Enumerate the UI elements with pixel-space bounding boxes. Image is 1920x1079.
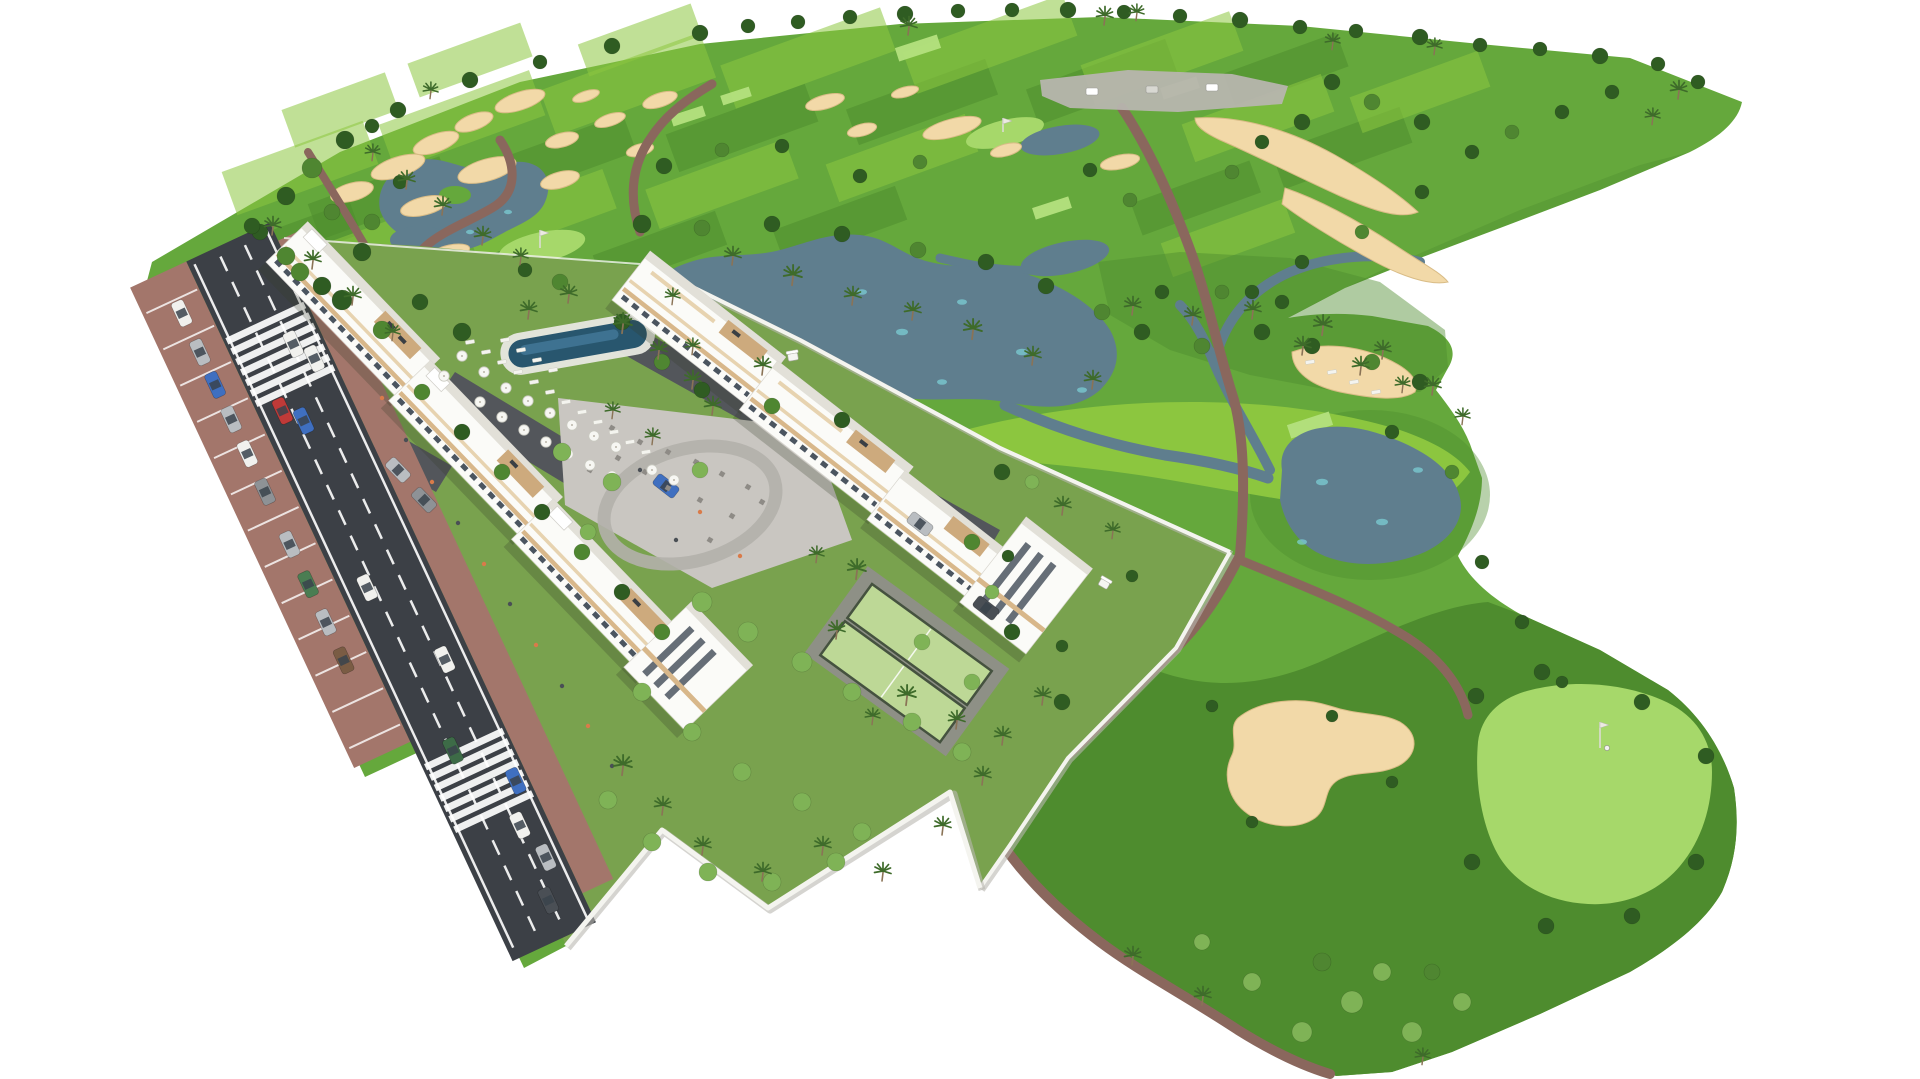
tree (1402, 1022, 1422, 1042)
tree (733, 763, 751, 781)
tree (643, 833, 661, 851)
tree (534, 504, 550, 520)
tree (1155, 285, 1169, 299)
tree (414, 384, 430, 400)
tree (1243, 973, 1261, 991)
palm-fronds (561, 285, 578, 296)
palm-fronds (1105, 522, 1120, 532)
tree (1385, 425, 1399, 439)
tree (1349, 24, 1363, 38)
tree (1056, 640, 1068, 652)
tree (1505, 125, 1519, 139)
pedestrian (380, 396, 384, 400)
tree (1173, 9, 1187, 23)
tree (353, 243, 371, 261)
umbrella-pole (589, 464, 591, 466)
tree (1194, 338, 1210, 354)
tree (633, 215, 651, 233)
tree (390, 102, 406, 118)
palm-fronds (755, 863, 772, 874)
tree (1538, 918, 1554, 934)
palm-fronds (1425, 377, 1442, 388)
tree (1005, 3, 1019, 17)
tree (1002, 550, 1014, 562)
tree (580, 524, 596, 540)
tree (1232, 12, 1248, 28)
palm-fronds (345, 287, 362, 298)
pedestrian (456, 521, 460, 525)
pool-umbrella (457, 351, 467, 361)
palm-fronds (1295, 337, 1312, 348)
tree (694, 220, 710, 236)
tree (277, 247, 295, 265)
parked-cart (1206, 84, 1218, 91)
tree (1275, 295, 1289, 309)
aerial-render-svg (0, 0, 1920, 1079)
tree (953, 743, 971, 761)
tree (1651, 57, 1665, 71)
golfer (1604, 745, 1609, 750)
tree (792, 652, 812, 672)
tree (1004, 624, 1020, 640)
tree (1060, 2, 1076, 18)
umbrella-pole (505, 387, 507, 389)
pedestrian (586, 724, 590, 728)
tree (336, 131, 354, 149)
tree (910, 242, 926, 258)
palm-fronds (1375, 341, 1392, 352)
pool-umbrella (589, 431, 599, 441)
tree (843, 683, 861, 701)
tree (1225, 165, 1239, 179)
tree (1293, 20, 1307, 34)
palm-fronds (975, 767, 992, 778)
palm-fronds (1035, 687, 1052, 698)
pool-umbrella (497, 412, 507, 422)
tree (1556, 676, 1568, 688)
palm-fronds (898, 685, 916, 697)
tree (775, 139, 789, 153)
tree (793, 793, 811, 811)
tree (244, 218, 260, 234)
tree (1364, 94, 1380, 110)
palm-fronds (815, 837, 832, 848)
umbrella-pole (479, 401, 481, 403)
pedestrian (638, 468, 642, 472)
pedestrian (430, 480, 434, 484)
tree (1117, 5, 1131, 19)
water-highlight (1077, 387, 1087, 393)
tree (1412, 29, 1428, 45)
palm-fronds (1055, 497, 1072, 508)
water-highlight (957, 299, 967, 305)
tree (683, 723, 701, 741)
pool-umbrella (501, 383, 511, 393)
tree (1326, 710, 1338, 722)
palm-fronds (755, 357, 772, 368)
tree (1206, 700, 1218, 712)
tree (951, 4, 965, 18)
tree (1123, 193, 1137, 207)
water-highlight (1316, 479, 1328, 486)
palm-fronds (875, 863, 892, 874)
tree (1194, 934, 1210, 950)
palm-fronds (685, 371, 702, 382)
palm-fronds (1645, 108, 1660, 118)
tree (574, 544, 590, 560)
pool-umbrella (519, 425, 529, 435)
palm-fronds (901, 17, 918, 28)
tree (1445, 465, 1459, 479)
tree (1324, 74, 1340, 90)
tree (1453, 993, 1471, 1011)
water-highlight (896, 329, 908, 336)
palm-fronds (784, 265, 802, 277)
tree (1465, 145, 1479, 159)
palm-fronds (645, 428, 660, 438)
pool-umbrella (523, 396, 533, 406)
tree (1134, 324, 1150, 340)
tree (843, 10, 857, 24)
umbrella-pole (501, 416, 503, 418)
umbrella-pole (545, 441, 547, 443)
palm-fronds (809, 546, 824, 556)
tree (763, 873, 781, 891)
tree (834, 412, 850, 428)
tree (453, 323, 471, 341)
pedestrian (482, 562, 486, 566)
palm-fronds (1314, 315, 1332, 327)
tree (633, 683, 651, 701)
tree (1254, 324, 1270, 340)
tree (1475, 555, 1489, 569)
rendered-image (0, 0, 1920, 1079)
pool-umbrella (541, 437, 551, 447)
tree (985, 585, 999, 599)
palm-fronds (1353, 357, 1370, 368)
palm-fronds (1125, 297, 1142, 308)
tree (1246, 816, 1258, 828)
tree (791, 15, 805, 29)
tree (553, 443, 571, 461)
tree (834, 226, 850, 242)
palm-fronds (829, 621, 846, 632)
tree (764, 216, 780, 232)
tree (1313, 953, 1331, 971)
pedestrian (674, 538, 678, 542)
tree (454, 424, 470, 440)
palm-fronds (1395, 376, 1410, 386)
tree (614, 584, 630, 600)
tree (1255, 135, 1269, 149)
water-highlight (1376, 519, 1388, 526)
tree (324, 204, 340, 220)
umbrella-pole (549, 412, 551, 414)
tree (1414, 114, 1430, 130)
pedestrian (508, 602, 512, 606)
tree (1245, 285, 1259, 299)
tree (277, 187, 295, 205)
palm-fronds (665, 288, 680, 298)
tree (1605, 85, 1619, 99)
pool-umbrella (567, 420, 577, 430)
pedestrian (534, 643, 538, 647)
palm-fronds (614, 313, 632, 325)
pedestrian (404, 438, 408, 442)
palm-fronds (935, 817, 952, 828)
palm-fronds (1097, 7, 1114, 18)
water-highlight (1297, 539, 1307, 545)
tree (692, 25, 708, 41)
umbrella-pole (443, 375, 445, 377)
parked-cart (1146, 86, 1158, 93)
tree (741, 19, 755, 33)
water-highlight (1413, 467, 1423, 473)
pool-umbrella (439, 371, 449, 381)
palm-fronds (1125, 947, 1142, 958)
umbrella-pole (523, 429, 525, 431)
pool-umbrella (647, 465, 657, 475)
water-highlight (466, 230, 474, 234)
palm-fronds (1185, 307, 1202, 318)
water-highlight (504, 210, 512, 214)
pedestrian (560, 684, 564, 688)
palm-fronds (1415, 1048, 1430, 1058)
palm-fronds (521, 301, 538, 312)
tree (1373, 963, 1391, 981)
tree (978, 254, 994, 270)
tree (699, 863, 717, 881)
umbrella-pole (461, 355, 463, 357)
tree (1215, 285, 1229, 299)
palm-fronds (305, 251, 322, 262)
palm-fronds (423, 82, 438, 92)
tree (1473, 38, 1487, 52)
palm-fronds (1129, 4, 1144, 14)
tree (1634, 694, 1650, 710)
tree (1534, 664, 1550, 680)
pool-umbrella (545, 408, 555, 418)
tree (654, 624, 670, 640)
palm-fronds (655, 797, 672, 808)
tree (1555, 105, 1569, 119)
tree (903, 713, 921, 731)
tree (1292, 1022, 1312, 1042)
tree (365, 119, 379, 133)
tree (964, 534, 980, 550)
palm-fronds (865, 708, 880, 718)
tree (715, 143, 729, 157)
tree (1688, 854, 1704, 870)
parked-cart (1086, 88, 1098, 95)
umbrella-pole (571, 424, 573, 426)
palm-fronds (435, 197, 452, 208)
pool-umbrella (611, 442, 621, 452)
tree (1424, 964, 1440, 980)
pool-umbrella (475, 397, 485, 407)
umbrella-pole (593, 435, 595, 437)
tree (654, 354, 670, 370)
palm-fronds (385, 324, 400, 334)
tree (1464, 854, 1480, 870)
tree (1386, 776, 1398, 788)
tree (1624, 908, 1640, 924)
tree (1126, 570, 1138, 582)
palm-fronds (399, 171, 416, 182)
palm-fronds (1085, 371, 1102, 382)
tree (599, 791, 617, 809)
palm-fronds (475, 227, 492, 238)
tree (1533, 42, 1547, 56)
tree (313, 277, 331, 295)
tree (1025, 475, 1039, 489)
palm-fronds (685, 338, 700, 348)
palm-fronds (845, 287, 862, 298)
tree (364, 214, 380, 230)
tree (1295, 255, 1309, 269)
palm-fronds (848, 559, 866, 571)
tree (1355, 225, 1369, 239)
umbrella-pole (527, 400, 529, 402)
palm-fronds (513, 248, 528, 258)
tree (913, 155, 927, 169)
pool-umbrella (669, 475, 679, 485)
tree (1341, 991, 1363, 1013)
pool-umbrella (479, 367, 489, 377)
tree (827, 853, 845, 871)
tree (1415, 185, 1429, 199)
tree (738, 622, 758, 642)
tree (853, 823, 871, 841)
tree (1094, 304, 1110, 320)
tree (533, 55, 547, 69)
umbrella-pole (483, 371, 485, 373)
palm-fronds (651, 341, 668, 352)
tree (692, 462, 708, 478)
palm-fronds (1195, 987, 1212, 998)
palm-fronds (725, 247, 742, 258)
palm-fronds (964, 319, 982, 331)
tree (412, 294, 428, 310)
tree (604, 38, 620, 54)
pedestrian (738, 554, 742, 558)
palm-fronds (265, 217, 282, 228)
palm-fronds (1671, 81, 1688, 92)
umbrella-pole (651, 469, 653, 471)
tree (656, 158, 672, 174)
tree (302, 158, 322, 178)
palm-fronds (605, 402, 620, 412)
umbrella-pole (615, 446, 617, 448)
tree (1592, 48, 1608, 64)
palm-fronds (905, 302, 922, 313)
tree (994, 464, 1010, 480)
tree (692, 592, 712, 612)
tree (494, 464, 510, 480)
palm-fronds (705, 397, 722, 408)
water-highlight (937, 379, 947, 385)
palm-fronds (695, 837, 712, 848)
palm-fronds (1325, 33, 1340, 43)
tree (914, 634, 930, 650)
palm-fronds (1025, 347, 1042, 358)
pool-umbrella (585, 460, 595, 470)
tree (1698, 748, 1714, 764)
umbrella-pole (673, 479, 675, 481)
palm-fronds (365, 144, 380, 154)
palm-fronds (995, 727, 1012, 738)
tree (1691, 75, 1705, 89)
palm-fronds (1245, 301, 1262, 312)
tree (1054, 694, 1070, 710)
tree (853, 169, 867, 183)
tree (964, 674, 980, 690)
pedestrian (698, 510, 702, 514)
tree (1515, 615, 1529, 629)
tree (462, 72, 478, 88)
tree (603, 473, 621, 491)
palm-fronds (614, 755, 632, 767)
palm-fronds (1427, 38, 1442, 48)
tree (1038, 278, 1054, 294)
palm-fronds (949, 711, 966, 722)
tree (764, 398, 780, 414)
palm-fronds (1455, 408, 1470, 418)
tree (1468, 688, 1484, 704)
tree (1083, 163, 1097, 177)
tree (291, 263, 309, 281)
tree (694, 382, 710, 398)
tree (1294, 114, 1310, 130)
